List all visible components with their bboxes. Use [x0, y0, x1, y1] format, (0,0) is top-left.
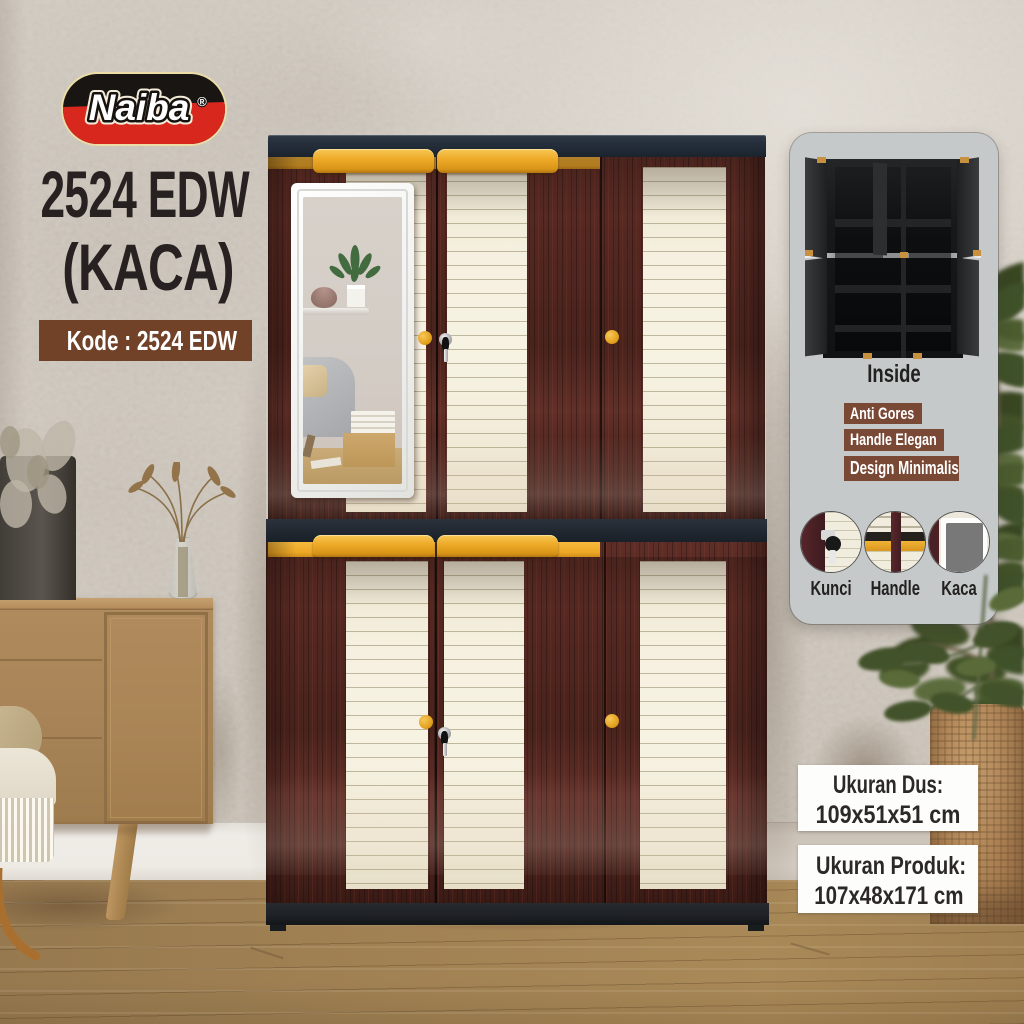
svg-text:Naiba: Naiba [89, 87, 190, 128]
svg-text:®: ® [197, 94, 207, 109]
